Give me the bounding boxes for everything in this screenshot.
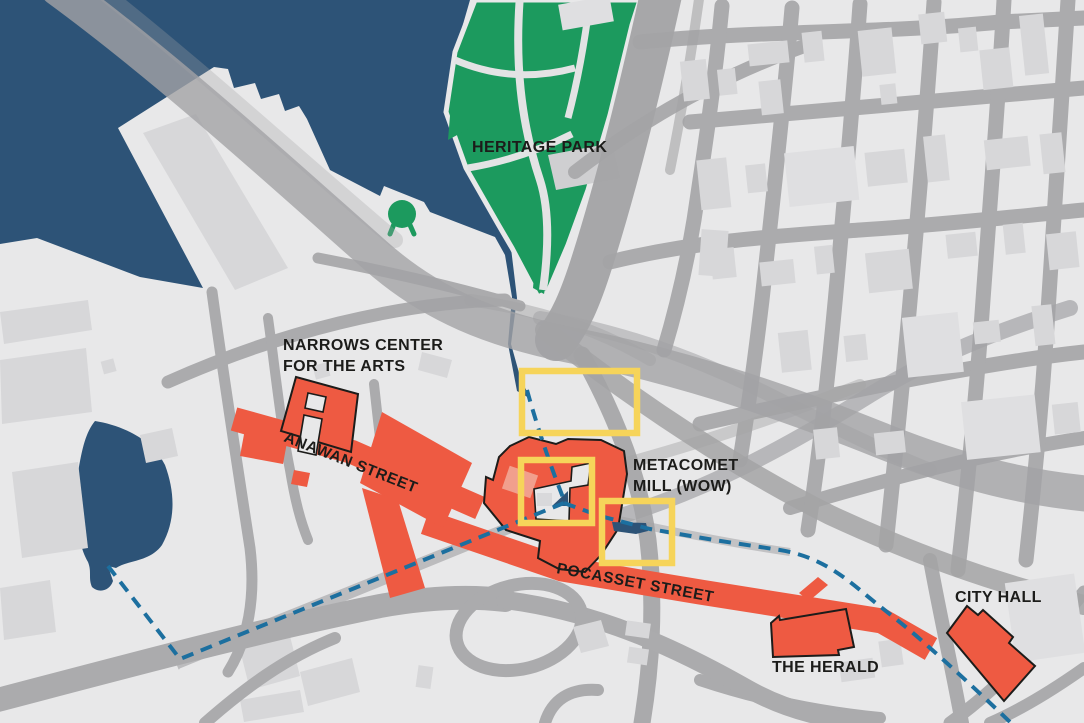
label-the-herald: THE HERALD [772, 659, 879, 676]
label-narrows-line2: FOR THE ARTS [283, 358, 405, 375]
city-map-svg: HERITAGE PARK NARROWS CENTER FOR THE ART… [0, 0, 1084, 723]
city-map: HERITAGE PARK NARROWS CENTER FOR THE ART… [0, 0, 1084, 723]
label-heritage-park: HERITAGE PARK [472, 139, 607, 156]
label-city-hall: CITY HALL [955, 589, 1042, 606]
mill-courtyard-shed [537, 493, 552, 506]
label-narrows-line1: NARROWS CENTER [283, 337, 443, 354]
label-metacomet-line2: MILL (WOW) [633, 478, 732, 495]
label-metacomet-line1: METACOMET [633, 457, 739, 474]
